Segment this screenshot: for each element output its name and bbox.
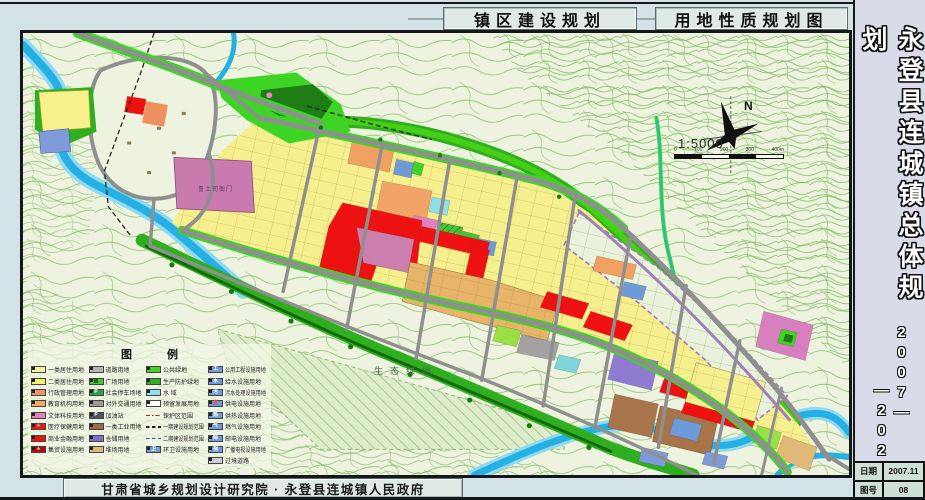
legend-label: 燃气设施用地: [225, 422, 261, 431]
plan-title-vertical: 永登县连城镇总体规划: [855, 26, 925, 316]
legend-item: 行政管理用地: [31, 387, 87, 398]
date-label: 日期: [854, 462, 883, 481]
legend-label: 教育机构用地: [48, 399, 84, 408]
legend-label: 一期建设规划范围: [163, 422, 204, 431]
legend-label: 供电设施用地: [225, 399, 261, 408]
legend-label: 生产防护绿地: [163, 377, 199, 386]
legend-item: 水给水设施用地: [208, 375, 268, 386]
legend-swatch: [89, 423, 104, 430]
legend-item: 卫环卫设施用地: [146, 444, 206, 455]
legend-item: 一期建设规划范围: [146, 421, 206, 432]
legend-swatch: [31, 366, 46, 373]
legend-swatch: [89, 400, 104, 407]
parcel-utility-nw: [39, 129, 71, 154]
legend-swatch: 视: [208, 446, 223, 453]
legend-label: 加油站: [106, 411, 124, 420]
legend-swatch: [31, 435, 46, 442]
top-rule: [0, 2, 853, 4]
legend-label: 行政管理用地: [48, 388, 84, 397]
scale-bar: 0100200300400m: [674, 147, 784, 159]
legend-swatch: 工: [208, 366, 223, 373]
plan-sheet: 镇区建设规划 用地性质规划图: [0, 0, 925, 500]
legend-item: ▥广场用地: [89, 375, 145, 386]
legend-swatch: [146, 389, 161, 396]
header-connector-mid: [636, 18, 656, 20]
legend-swatch: [208, 457, 223, 464]
scale-tick: 0: [674, 147, 677, 153]
legend-label: 环卫设施用地: [163, 445, 199, 454]
monument-dot: [266, 92, 272, 98]
legend-swatch: P: [89, 412, 104, 419]
legend-item: 一类居住用地: [31, 364, 87, 375]
legend-item: 仓储用地: [89, 432, 145, 443]
legend-swatch: [146, 366, 161, 373]
scale-tick: 100: [694, 147, 702, 153]
legend-item: 二期建设规划范围: [146, 432, 206, 443]
legend-label: 一类居住用地: [48, 365, 84, 374]
legend-label: 文体科技用地: [48, 411, 84, 420]
legend-label: 一类工业用地: [106, 422, 142, 431]
plan-period-start: 2007—: [893, 324, 910, 424]
legend-swatch: ●: [31, 446, 46, 453]
legend-swatch: [31, 389, 46, 396]
legend-label: 预留发展用地: [163, 399, 199, 408]
legend-column-1: 一类居住用地二类居住用地行政管理用地教育机构用地文体科技用地+医疗保健用地商业金…: [31, 364, 87, 467]
legend-columns: 一类居住用地二类居住用地行政管理用地教育机构用地文体科技用地+医疗保健用地商业金…: [31, 364, 268, 467]
legend-label: 水 域: [163, 388, 177, 397]
legend-label: 对外交通用地: [106, 399, 142, 408]
legend-swatch: [31, 400, 46, 407]
legend-item: 文体科技用地: [31, 410, 87, 421]
eco-green-label: 生态绿地: [374, 364, 438, 377]
legend-swatch: [31, 378, 46, 385]
legend-label: 二类居住用地: [48, 377, 84, 386]
legend-label: 供热设施用地: [225, 411, 261, 420]
legend-item: ●集贸设施用地: [31, 444, 87, 455]
scale-bar-ticks: 0100200300400m: [674, 147, 784, 153]
legend-swatch: [89, 446, 104, 453]
header-connector-left: [408, 18, 448, 20]
legend-swatch: [89, 366, 104, 373]
legend-swatch: [146, 412, 161, 419]
legend-swatch: P: [89, 389, 104, 396]
legend-item: 视广播电视设施用地: [208, 444, 268, 455]
legend-item: 气燃气设施用地: [208, 421, 268, 432]
legend-column-2: 道路用地▥广场用地P社会停车场地对外交通用地P加油站一类工业用地仓储用地堆场用地: [89, 364, 145, 467]
title-sidebar: 永登县连城镇总体规划 2007— —2020: [853, 0, 925, 500]
legend-item: 过境道路: [208, 455, 268, 466]
scale-bar-segments: [674, 154, 784, 159]
legend-swatch: 热: [208, 412, 223, 419]
legend-item: 公共绿地: [146, 364, 206, 375]
header-title-left: 镇区建设规划: [443, 7, 637, 30]
legend-item: 堆场用地: [89, 444, 145, 455]
legend-label: 堆场用地: [106, 445, 130, 454]
legend-swatch: 变: [208, 400, 223, 407]
legend-label: 二期建设规划范围: [163, 434, 204, 443]
north-label: N: [744, 99, 753, 113]
legend-swatch: 污: [208, 389, 223, 396]
header-title-right: 用地性质规划图: [655, 7, 848, 30]
legend-column-3: 公共绿地生产防护绿地水 域预留发展用地保护区范围一期建设规划范围二期建设规划范围…: [146, 364, 206, 467]
legend-label: 公共绿地: [163, 365, 187, 374]
legend: 图 例 一类居住用地二类居住用地行政管理用地教育机构用地文体科技用地+医疗保健用…: [28, 344, 271, 468]
legend-item: 道路用地: [89, 364, 145, 375]
legend-item: 热供热设施用地: [208, 410, 268, 421]
legend-swatch: [146, 378, 161, 385]
parcel-residential-nw: [39, 90, 91, 131]
heritage-label: 鲁土司衙门: [198, 184, 233, 193]
legend-swatch: ▥: [89, 378, 104, 385]
legend-label: 社会停车场地: [106, 388, 142, 397]
legend-label: 仓储用地: [106, 434, 130, 443]
legend-item: 保护区范围: [146, 410, 206, 421]
scale-tick: 400m: [771, 147, 784, 153]
legend-label: 广场用地: [106, 377, 130, 386]
legend-swatch: 邮: [208, 435, 223, 442]
legend-label: 保护区范围: [163, 411, 193, 420]
legend-item: 商业金融用地: [31, 432, 87, 443]
legend-item: P加油站: [89, 410, 145, 421]
legend-label: 医疗保健用地: [48, 422, 84, 431]
legend-label: 道路用地: [106, 365, 130, 374]
legend-item: 水 域: [146, 387, 206, 398]
parcel-education-old: [142, 101, 168, 127]
legend-title: 图 例: [31, 346, 268, 362]
legend-item: 一类工业用地: [89, 421, 145, 432]
legend-item: 对外交通用地: [89, 398, 145, 409]
scale-tick: 200: [720, 147, 728, 153]
legend-label: 商业金融用地: [48, 434, 84, 443]
legend-swatch: [146, 435, 161, 442]
legend-item: 预留发展用地: [146, 398, 206, 409]
legend-item: +医疗保健用地: [31, 421, 87, 432]
legend-swatch: [89, 435, 104, 442]
legend-column-4: 工公用工程设施用地水给水设施用地污污水处理设施用地变供电设施用地热供热设施用地气…: [208, 364, 268, 467]
legend-swatch: 水: [208, 378, 223, 385]
legend-item: 二类居住用地: [31, 375, 87, 386]
date-value: 2007.11: [883, 462, 924, 481]
legend-item: 生产防护绿地: [146, 375, 206, 386]
legend-label: 给水设施用地: [225, 377, 261, 386]
legend-item: 污污水处理设施用地: [208, 387, 268, 398]
legend-swatch: 卫: [146, 446, 161, 453]
credit-bar: 甘肃省城乡规划设计研究院 · 永登县连城镇人民政府: [63, 478, 463, 498]
legend-item: 变供电设施用地: [208, 398, 268, 409]
legend-label: 过境道路: [225, 456, 249, 465]
legend-label: 广播电视设施用地: [225, 445, 266, 454]
legend-label: 污水处理设施用地: [225, 388, 266, 397]
legend-label: 邮电设施用地: [225, 434, 261, 443]
legend-item: P社会停车场地: [89, 387, 145, 398]
legend-swatch: [31, 412, 46, 419]
legend-swatch: [146, 423, 161, 430]
sheet-info-table: 日期 2007.11 图号 08: [853, 461, 925, 500]
legend-label: 公用工程设施用地: [225, 365, 266, 374]
legend-swatch: 气: [208, 423, 223, 430]
legend-label: 集贸设施用地: [48, 445, 84, 454]
legend-item: 教育机构用地: [31, 398, 87, 409]
legend-swatch: [146, 400, 161, 407]
legend-item: 工公用工程设施用地: [208, 364, 268, 375]
legend-item: 邮邮电设施用地: [208, 432, 268, 443]
scale-tick: 300: [746, 147, 754, 153]
legend-swatch: +: [31, 423, 46, 430]
parcel-commercial-old: [124, 96, 146, 115]
